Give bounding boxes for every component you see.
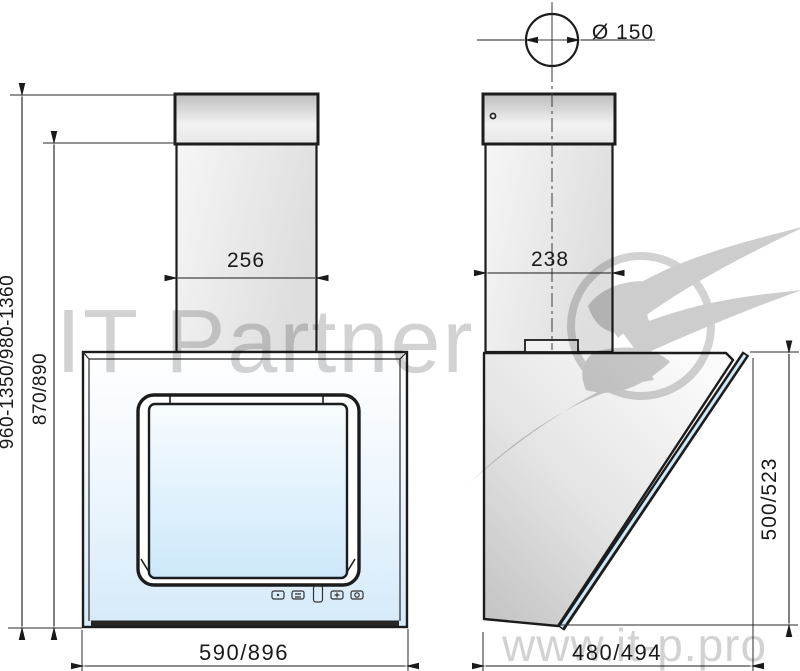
front-chimney-upper-section [175,94,318,144]
front-body-bottom-trim [91,621,399,627]
glass-height-label: 500/523 [758,458,781,541]
duct-diameter-label: Ø 150 [592,21,654,44]
hood-dimension-diagram: Ø 150 256 238 960-1350/980-1360 870/890 … [0,0,800,671]
chimney-depth-label: 238 [531,248,569,271]
side-hood-body [484,353,733,626]
side-chimney-upper-section [483,94,615,144]
chimney-width-label: 256 [227,249,265,272]
website-watermark-text: www.it-p.pro [501,619,767,671]
body-width-label: 590/896 [199,640,289,665]
body-height-label: 870/890 [30,353,51,425]
overall-height-label: 960-1350/980-1360 [0,275,18,449]
front-filter-panel [149,404,347,578]
technical-drawing-page: Ø 150 256 238 960-1350/980-1360 870/890 … [0,0,800,671]
brand-watermark-text: IT Partner [56,292,475,392]
